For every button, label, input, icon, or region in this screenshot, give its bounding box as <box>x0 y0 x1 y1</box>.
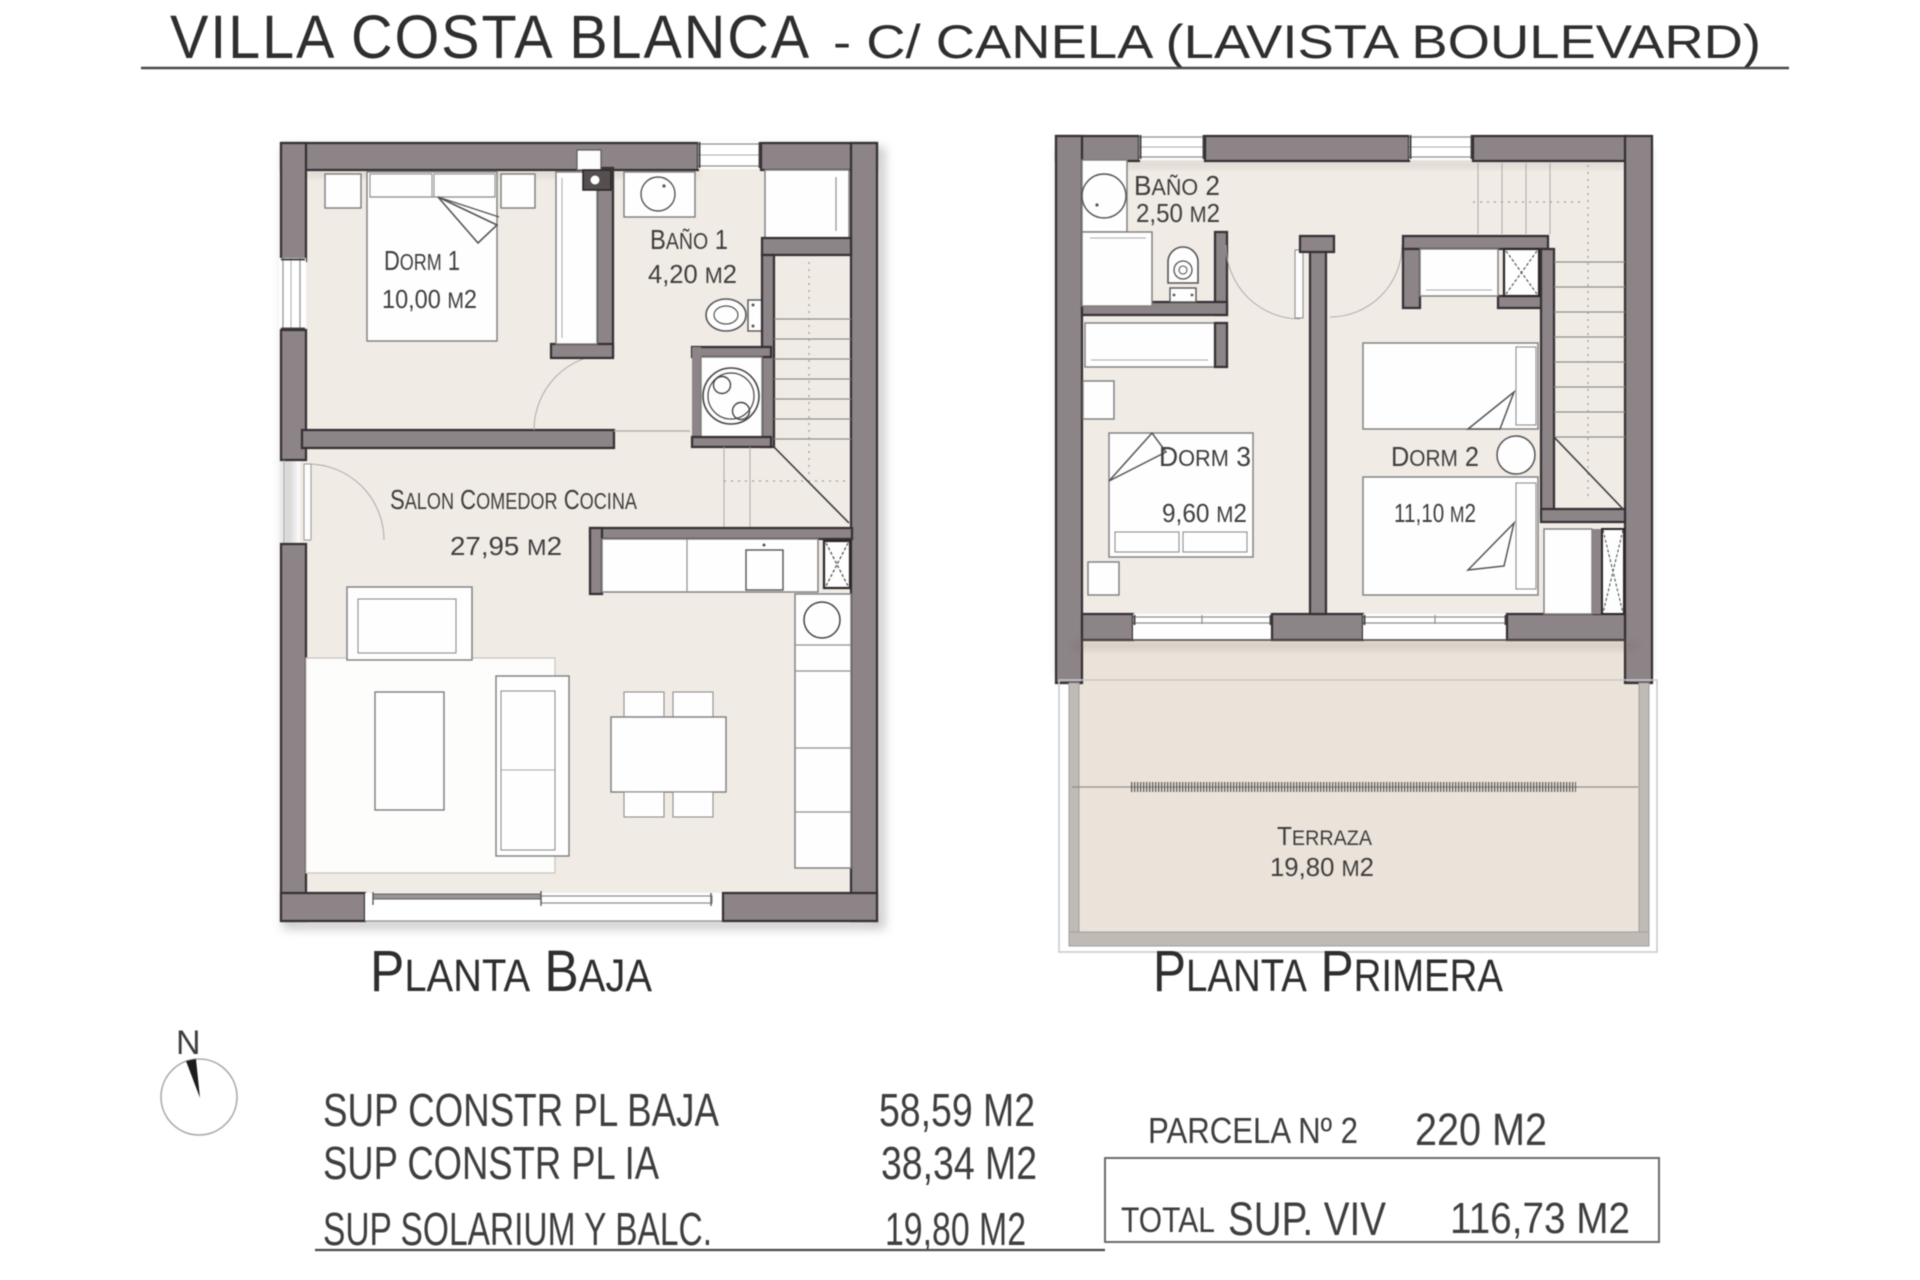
svg-text:58,59 M2: 58,59 M2 <box>879 1084 1035 1136</box>
svg-text:- C/ CANELA (LAVISTA BOULEVARD: - C/ CANELA (LAVISTA BOULEVARD) <box>833 15 1761 68</box>
svg-text:2,50 M2: 2,50 M2 <box>1136 198 1220 228</box>
svg-text:TOTAL: TOTAL <box>1121 1201 1215 1240</box>
svg-text:27,95 M2: 27,95 M2 <box>450 531 562 561</box>
svg-text:SUP CONSTR PL IA: SUP CONSTR PL IA <box>323 1137 659 1189</box>
svg-text:SUP CONSTR PL BAJA: SUP CONSTR PL BAJA <box>323 1084 719 1136</box>
svg-text:DORM 1: DORM 1 <box>384 245 460 276</box>
svg-text:SUP. VIV: SUP. VIV <box>1228 1192 1387 1245</box>
svg-text:SUP SOLARIUM Y BALC.: SUP SOLARIUM Y BALC. <box>323 1203 712 1255</box>
svg-text:4,20 M2: 4,20 M2 <box>648 259 737 289</box>
svg-text:19,80 M2: 19,80 M2 <box>885 1203 1026 1255</box>
svg-text:38,34 M2: 38,34 M2 <box>881 1137 1037 1189</box>
svg-text:19,80 M2: 19,80 M2 <box>1270 852 1374 882</box>
svg-text:PARCELA Nº 2: PARCELA Nº 2 <box>1148 1110 1358 1151</box>
svg-text:DORM 2: DORM 2 <box>1391 441 1479 472</box>
svg-text:116,73 M2: 116,73 M2 <box>1450 1194 1630 1243</box>
svg-text:10,00 M2: 10,00 M2 <box>382 284 477 314</box>
svg-text:BAÑO 1: BAÑO 1 <box>650 224 728 255</box>
svg-text:220 M2: 220 M2 <box>1415 1104 1547 1155</box>
svg-text:DORM 3: DORM 3 <box>1159 441 1251 472</box>
svg-text:N: N <box>176 1024 201 1062</box>
svg-text:11,10 M2: 11,10 M2 <box>1394 498 1476 528</box>
svg-text:9,60 M2: 9,60 M2 <box>1162 498 1247 528</box>
svg-text:VILLA COSTA BLANCA: VILLA COSTA BLANCA <box>170 3 811 71</box>
svg-text:SALON COMEDOR COCINA: SALON COMEDOR COCINA <box>390 484 638 515</box>
svg-text:BAÑO 2: BAÑO 2 <box>1134 170 1220 201</box>
